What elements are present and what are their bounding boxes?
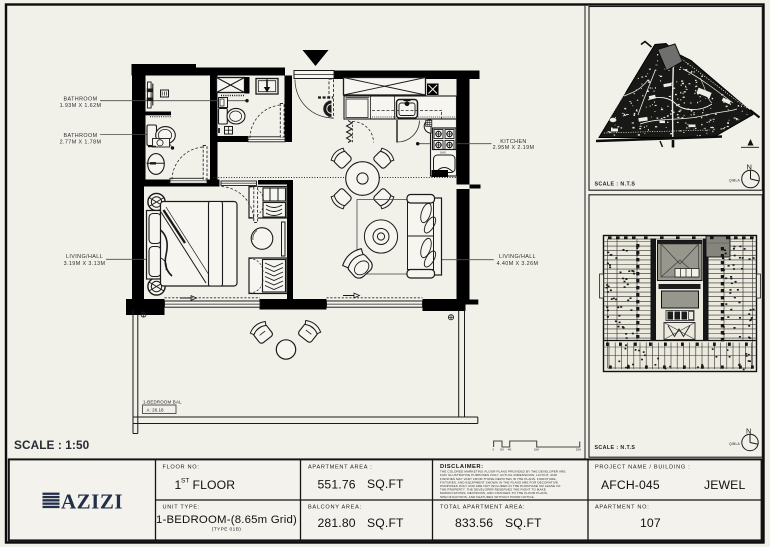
svg-text:ST: ST xyxy=(181,478,189,485)
svg-text:JEWEL: JEWEL xyxy=(704,478,745,492)
svg-text:QIBLA: QIBLA xyxy=(729,442,741,446)
svg-text:20M: 20M xyxy=(576,448,581,452)
svg-text:4M: 4M xyxy=(508,448,512,452)
svg-text:107: 107 xyxy=(640,516,661,530)
svg-text:1-BEDROOM-(8.65m Grid): 1-BEDROOM-(8.65m Grid) xyxy=(156,514,297,526)
svg-text:FLOOR: FLOOR xyxy=(193,478,236,492)
svg-text:BALCONY AREA:: BALCONY AREA: xyxy=(308,505,362,511)
svg-text:1.93M X 1.62M: 1.93M X 1.62M xyxy=(60,103,102,109)
svg-text:SCALE : N.T.S: SCALE : N.T.S xyxy=(595,182,636,188)
svg-text:4.40M X 3.26M: 4.40M X 3.26M xyxy=(497,261,539,267)
svg-text:GAS: GAS xyxy=(440,151,446,155)
svg-text:UNIT TYPE:: UNIT TYPE: xyxy=(163,505,201,511)
svg-text:SCALE : 1:50: SCALE : 1:50 xyxy=(14,438,90,452)
svg-text:551.76: 551.76 xyxy=(318,478,356,492)
svg-text:281.80: 281.80 xyxy=(318,516,356,530)
svg-text:AZIZI: AZIZI xyxy=(61,490,123,514)
svg-text:SQ.FT: SQ.FT xyxy=(367,516,404,530)
svg-text:SQ.FT: SQ.FT xyxy=(367,477,404,491)
svg-text:2M: 2M xyxy=(500,448,504,452)
svg-text:N: N xyxy=(747,163,752,172)
svg-text:SQ.FT: SQ.FT xyxy=(505,516,542,530)
svg-text:2.95M X 2.19M: 2.95M X 2.19M xyxy=(493,145,535,151)
svg-text:PROJECT NAME / BUILDING :: PROJECT NAME / BUILDING : xyxy=(595,465,690,471)
svg-text:2.77M X 1.78M: 2.77M X 1.78M xyxy=(60,140,102,146)
svg-text:BATHROOM: BATHROOM xyxy=(64,133,98,139)
svg-text:APARTMENT NO:: APARTMENT NO: xyxy=(595,505,649,511)
svg-text:AFCH-045: AFCH-045 xyxy=(601,478,660,492)
svg-text:KITCHEN: KITCHEN xyxy=(500,139,526,145)
svg-text:(TYPE 01B): (TYPE 01B) xyxy=(212,527,242,533)
svg-text:LIVING/HALL: LIVING/HALL xyxy=(66,254,103,260)
svg-text:A: 26.18: A: 26.18 xyxy=(147,407,165,412)
svg-text:LIVING/HALL: LIVING/HALL xyxy=(499,254,536,260)
svg-text:3.19M X 3.13M: 3.19M X 3.13M xyxy=(64,261,106,267)
svg-text:FLOOR NO:: FLOOR NO: xyxy=(163,465,200,471)
svg-text:10M: 10M xyxy=(534,448,539,452)
svg-text:SPECIFICATIONS, AND FEATURES W: SPECIFICATIONS, AND FEATURES WITHOUT PRI… xyxy=(440,495,535,499)
svg-text:833.56: 833.56 xyxy=(455,516,493,530)
svg-text:QIBLA: QIBLA xyxy=(729,179,741,183)
svg-text:SCALE : N.T.S: SCALE : N.T.S xyxy=(595,445,636,451)
svg-text:1-BEDROOM BAL: 1-BEDROOM BAL xyxy=(143,399,182,404)
svg-text:TOTAL APARTMENT AREA:: TOTAL APARTMENT AREA: xyxy=(440,505,525,511)
svg-text:N: N xyxy=(746,427,751,436)
svg-text:APARTMENT AREA :: APARTMENT AREA : xyxy=(308,465,372,471)
svg-text:BATHROOM: BATHROOM xyxy=(64,96,98,102)
